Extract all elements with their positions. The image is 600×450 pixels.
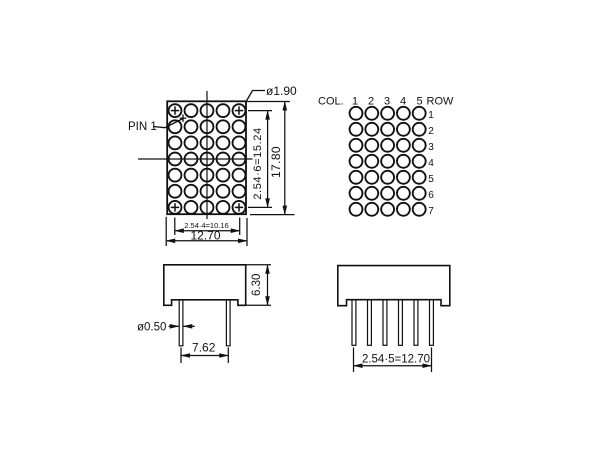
svg-text:1: 1 bbox=[428, 110, 434, 121]
svg-text:6: 6 bbox=[428, 190, 434, 201]
svg-text:3: 3 bbox=[428, 142, 434, 153]
svg-text:5: 5 bbox=[416, 96, 422, 108]
svg-text:2: 2 bbox=[428, 126, 434, 137]
svg-text:ø0.50: ø0.50 bbox=[137, 322, 166, 334]
svg-text:17.80: 17.80 bbox=[269, 146, 283, 178]
svg-text:7: 7 bbox=[428, 206, 434, 217]
svg-text:ø1.90: ø1.90 bbox=[266, 84, 297, 98]
svg-text:2.54·6=15.24: 2.54·6=15.24 bbox=[252, 127, 264, 199]
svg-text:COL.: COL. bbox=[318, 96, 344, 108]
svg-text:4: 4 bbox=[400, 96, 406, 108]
svg-text:12.70: 12.70 bbox=[190, 229, 220, 243]
svg-text:ROW: ROW bbox=[427, 96, 455, 108]
svg-text:3: 3 bbox=[384, 96, 390, 108]
svg-text:5: 5 bbox=[428, 174, 434, 185]
svg-text:2.54·5=12.70: 2.54·5=12.70 bbox=[362, 354, 430, 366]
svg-text:4: 4 bbox=[428, 158, 434, 169]
svg-text:2: 2 bbox=[368, 96, 374, 108]
svg-text:6.30: 6.30 bbox=[251, 274, 263, 296]
svg-text:1: 1 bbox=[352, 96, 358, 108]
svg-text:7.62: 7.62 bbox=[192, 341, 216, 355]
svg-text:PIN 1: PIN 1 bbox=[128, 121, 157, 133]
